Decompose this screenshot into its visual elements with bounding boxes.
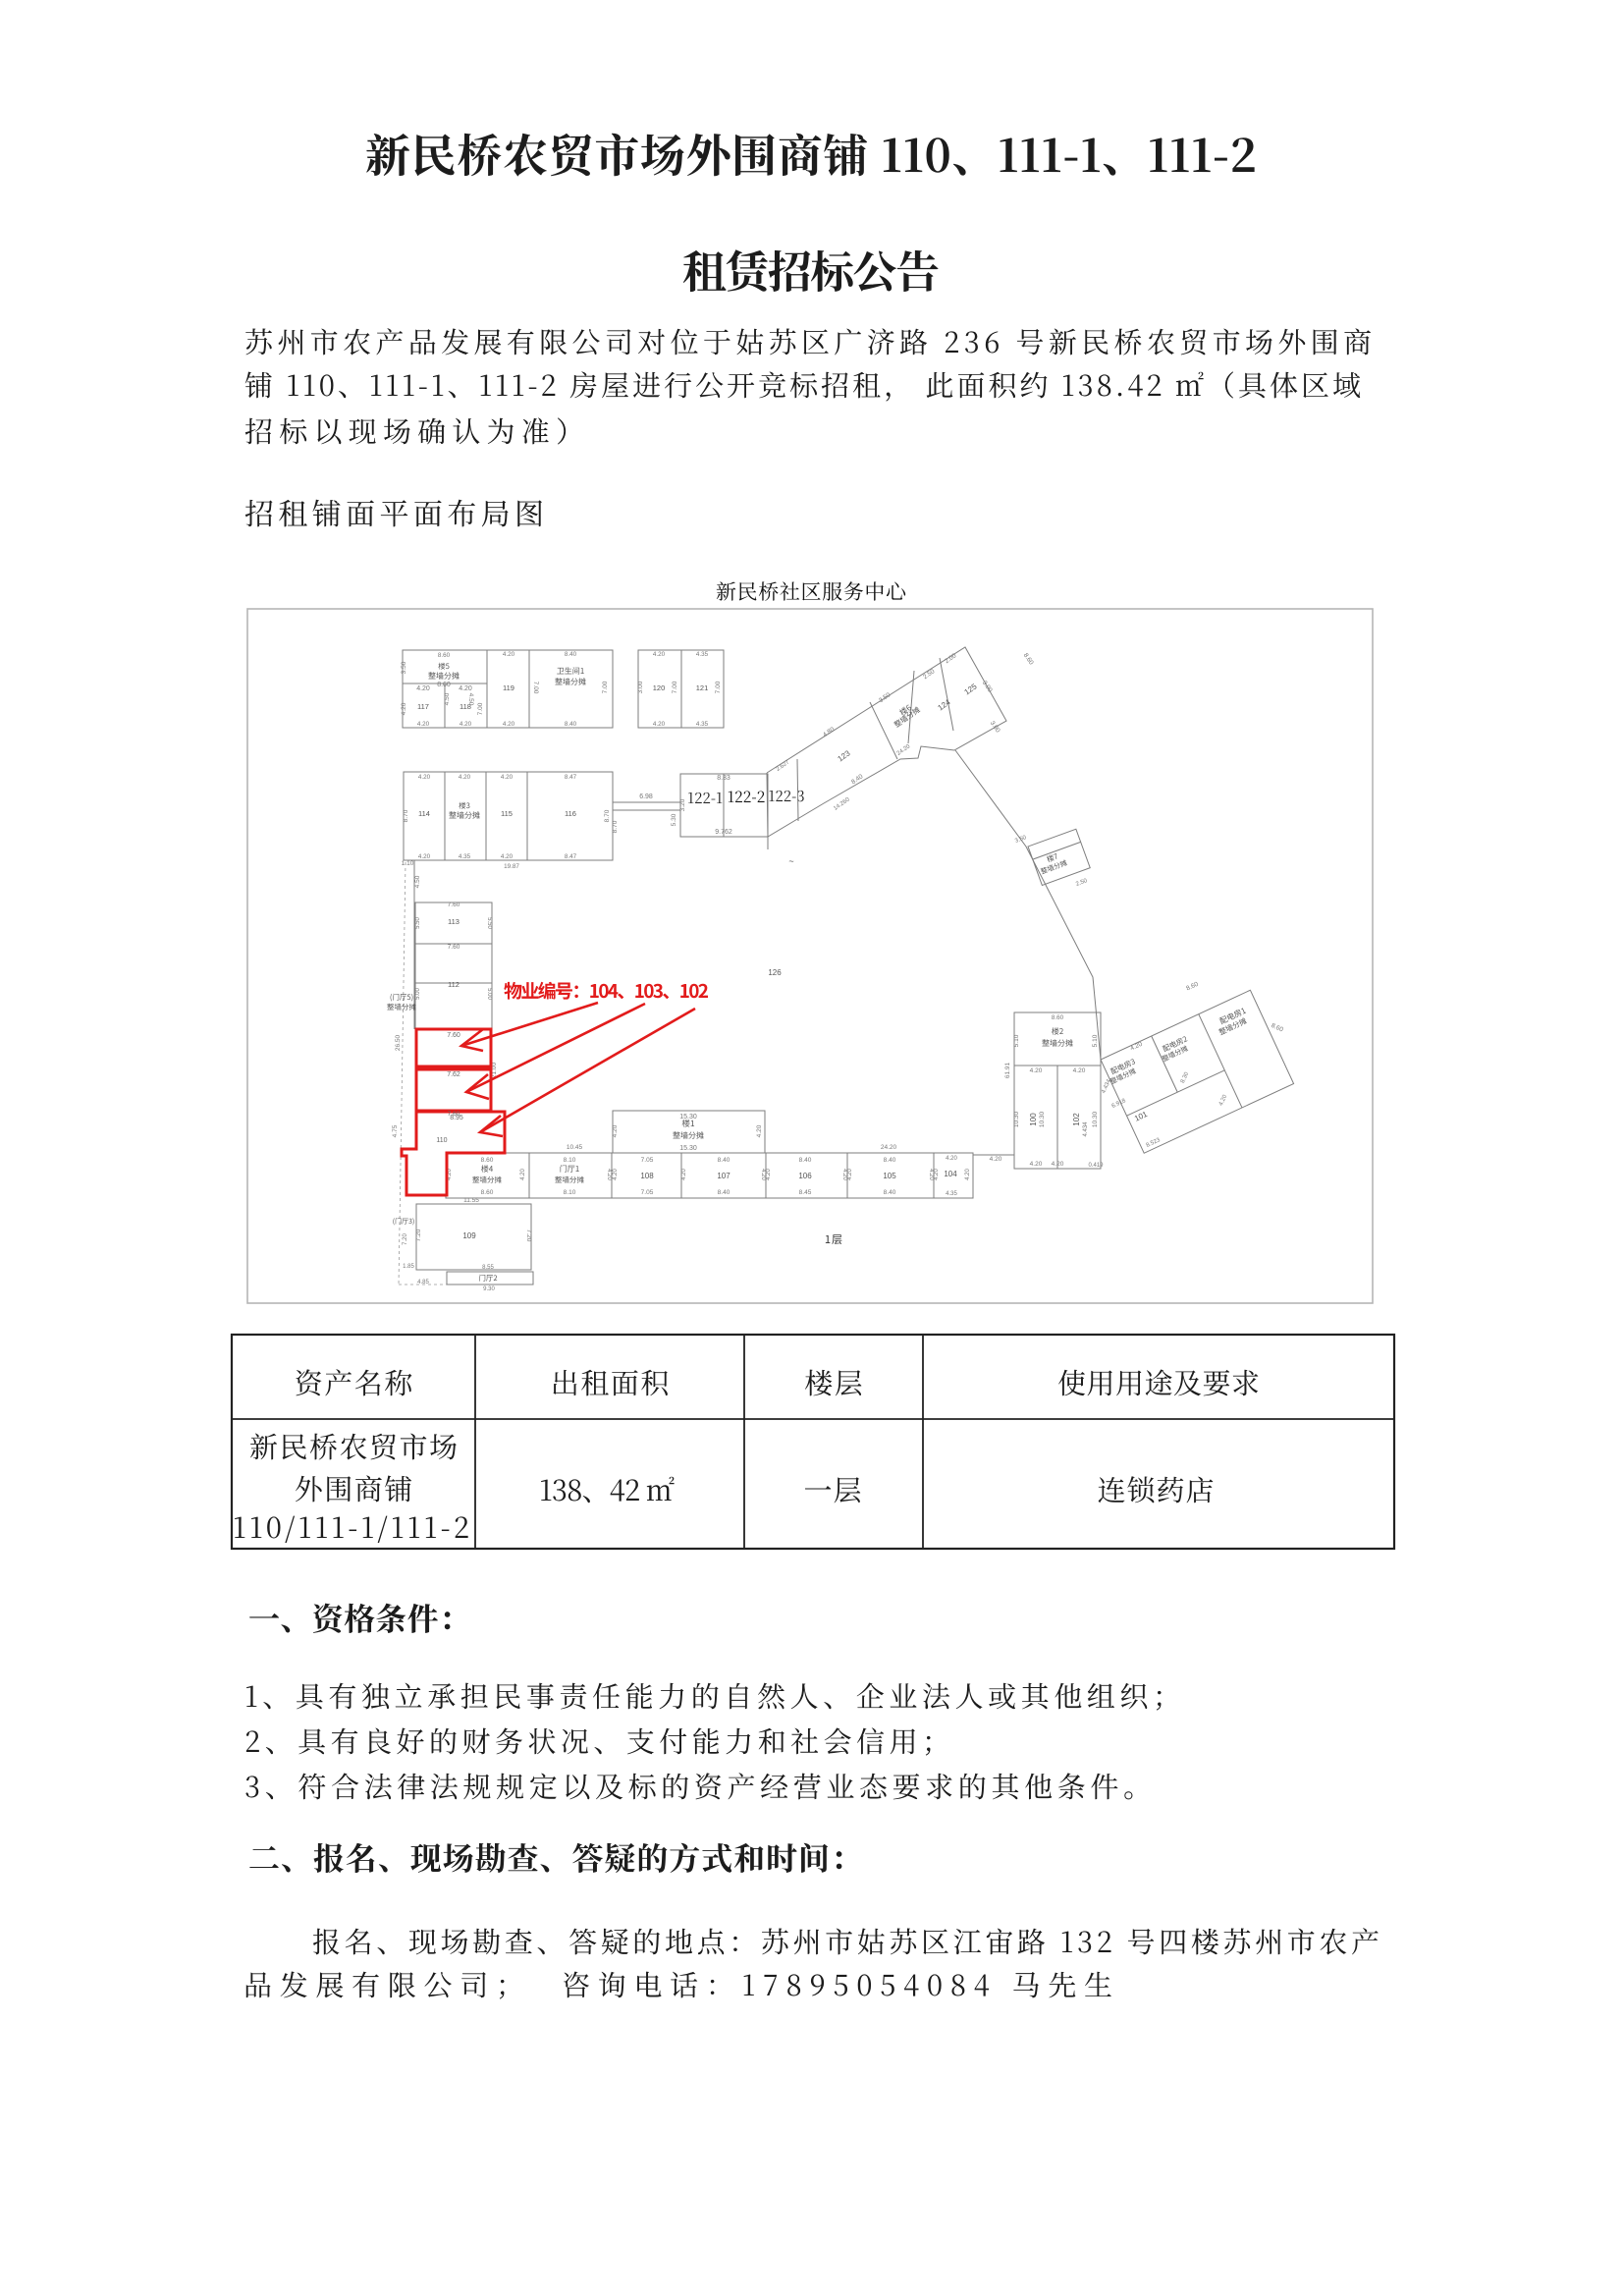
svg-text:11.55: 11.55: [463, 1197, 479, 1204]
svg-text:4.20: 4.20: [613, 1169, 619, 1180]
svg-text:4.20: 4.20: [418, 774, 431, 781]
svg-text:6.98: 6.98: [639, 793, 653, 800]
svg-text:116: 116: [565, 809, 576, 818]
svg-text:7.20: 7.20: [403, 1233, 408, 1245]
svg-text:104: 104: [944, 1170, 957, 1178]
svg-text:4.20: 4.20: [459, 685, 472, 692]
svg-text:8.60: 8.60: [437, 682, 451, 688]
svg-text:117: 117: [417, 702, 429, 711]
svg-text:8.47: 8.47: [565, 853, 577, 860]
svg-text:4.20: 4.20: [612, 1124, 619, 1137]
svg-text:4.20: 4.20: [503, 651, 515, 658]
svg-text:7.00: 7.00: [477, 702, 484, 715]
svg-text:4.35: 4.35: [459, 853, 471, 860]
svg-text:8.70: 8.70: [604, 809, 611, 822]
svg-text:4.20: 4.20: [459, 774, 471, 781]
svg-text:10.45: 10.45: [567, 1144, 583, 1151]
svg-text:8.60: 8.60: [481, 1189, 494, 1196]
svg-text:7.20: 7.20: [525, 1230, 532, 1242]
svg-text:8.40: 8.40: [565, 651, 577, 658]
svg-text:4.85: 4.85: [417, 1280, 429, 1285]
svg-text:8.10: 8.10: [564, 1157, 576, 1164]
svg-text:107: 107: [717, 1172, 730, 1180]
svg-text:7.60: 7.60: [448, 902, 460, 908]
svg-text:4.20: 4.20: [501, 774, 514, 781]
svg-text:8.60: 8.60: [1052, 1014, 1064, 1021]
svg-text:8.47: 8.47: [565, 774, 577, 781]
svg-text:7.00: 7.00: [532, 682, 539, 694]
svg-text:114: 114: [418, 809, 430, 818]
svg-text:8.70: 8.70: [612, 820, 619, 833]
svg-text:4.20: 4.20: [990, 1156, 1002, 1163]
svg-text:4.20: 4.20: [401, 702, 407, 715]
svg-text:8.70: 8.70: [403, 809, 409, 822]
svg-text:8.40: 8.40: [565, 721, 577, 728]
svg-text:7.00: 7.00: [672, 681, 678, 693]
svg-text:4.20: 4.20: [1052, 1161, 1064, 1168]
svg-text:8.40: 8.40: [884, 1189, 896, 1196]
svg-text:10.30: 10.30: [1092, 1111, 1099, 1127]
svg-text:8.40: 8.40: [799, 1157, 812, 1164]
svg-text:4.20: 4.20: [847, 1169, 853, 1180]
svg-text:15.30: 15.30: [679, 1114, 697, 1121]
svg-text:4.20: 4.20: [1030, 1161, 1043, 1168]
svg-text:3.00: 3.00: [637, 681, 644, 693]
svg-text:0.419: 0.419: [1088, 1163, 1104, 1169]
svg-text:4.20: 4.20: [681, 1169, 687, 1180]
svg-text:5.00: 5.00: [486, 988, 492, 1000]
svg-text:5.50: 5.50: [415, 917, 421, 929]
svg-text:4.20: 4.20: [503, 721, 515, 728]
svg-text:4.50: 4.50: [414, 875, 421, 888]
svg-text:5.00: 5.00: [415, 988, 421, 1000]
svg-text:8.40: 8.40: [718, 1157, 730, 1164]
svg-text:4.20: 4.20: [946, 1156, 957, 1162]
svg-text:5.30: 5.30: [671, 813, 677, 826]
svg-text:4.20: 4.20: [1030, 1067, 1043, 1074]
svg-text:4.35: 4.35: [696, 721, 709, 728]
svg-text:4.20: 4.20: [653, 651, 666, 658]
svg-text:4.20: 4.20: [416, 685, 430, 692]
svg-text:26.50: 26.50: [395, 1034, 402, 1051]
svg-text:102: 102: [1072, 1113, 1081, 1126]
svg-text:8.60: 8.60: [438, 652, 451, 659]
svg-text:4.20: 4.20: [460, 721, 472, 728]
svg-text:9.30: 9.30: [483, 1286, 495, 1292]
svg-text:119: 119: [503, 683, 514, 692]
svg-text:8.45: 8.45: [799, 1189, 812, 1196]
svg-text:7.20: 7.20: [415, 1229, 422, 1241]
svg-text:8.40: 8.40: [884, 1157, 896, 1164]
svg-text:4.20: 4.20: [520, 1169, 526, 1180]
svg-text:105: 105: [883, 1172, 896, 1180]
svg-text:1.85: 1.85: [403, 1264, 414, 1270]
svg-text:15.30: 15.30: [679, 1145, 697, 1152]
svg-text:7.00: 7.00: [602, 681, 609, 693]
svg-text:100: 100: [1029, 1113, 1038, 1126]
svg-text:5.50: 5.50: [486, 917, 492, 929]
svg-text:115: 115: [501, 809, 513, 818]
svg-text:4.20: 4.20: [965, 1169, 971, 1180]
svg-text:4.20: 4.20: [606, 1169, 612, 1180]
svg-text:4.20: 4.20: [417, 721, 430, 728]
svg-text:4.20: 4.20: [756, 1124, 763, 1137]
svg-text:112: 112: [448, 980, 460, 989]
svg-text:109: 109: [462, 1231, 476, 1240]
svg-text:10.30: 10.30: [1013, 1111, 1020, 1127]
svg-text:9.762: 9.762: [715, 829, 732, 836]
svg-text:~: ~: [788, 856, 793, 866]
svg-text:4.75: 4.75: [392, 1124, 399, 1137]
svg-text:4.20: 4.20: [418, 853, 431, 860]
svg-text:7.60: 7.60: [448, 944, 460, 951]
svg-text:8.33: 8.33: [717, 775, 730, 782]
svg-text:5.10: 5.10: [1013, 1034, 1020, 1047]
svg-text:61.91: 61.91: [1004, 1062, 1011, 1078]
svg-text:4.20: 4.20: [653, 721, 666, 728]
svg-text:10.30: 10.30: [1039, 1111, 1046, 1127]
svg-text:126: 126: [768, 968, 782, 977]
svg-text:7.60: 7.60: [448, 1111, 460, 1118]
svg-text:4.434: 4.434: [1083, 1121, 1089, 1137]
svg-text:3.20: 3.20: [679, 798, 686, 811]
svg-text:7.60: 7.60: [447, 1032, 460, 1039]
svg-text:4.50: 4.50: [467, 693, 474, 706]
svg-text:4.20: 4.20: [1073, 1067, 1086, 1074]
svg-text:5.10: 5.10: [1092, 1034, 1099, 1047]
svg-text:113: 113: [448, 917, 460, 926]
svg-text:4.35: 4.35: [946, 1191, 957, 1197]
svg-text:4.50: 4.50: [444, 692, 451, 705]
svg-text:121: 121: [696, 683, 709, 692]
svg-text:7.62: 7.62: [447, 1071, 460, 1078]
svg-text:7.05: 7.05: [641, 1189, 654, 1196]
svg-text:19.87: 19.87: [504, 863, 519, 870]
svg-text:8.55: 8.55: [482, 1265, 494, 1271]
svg-text:110: 110: [436, 1137, 447, 1144]
svg-text:8.10: 8.10: [564, 1189, 576, 1196]
svg-text:8.60: 8.60: [481, 1157, 494, 1164]
svg-text:106: 106: [798, 1172, 812, 1180]
svg-text:24.20: 24.20: [881, 1144, 897, 1151]
svg-text:7.05: 7.05: [641, 1157, 654, 1164]
svg-text:4.35: 4.35: [696, 651, 709, 658]
svg-text:4.20: 4.20: [766, 1169, 772, 1180]
svg-text:108: 108: [640, 1172, 654, 1180]
svg-text:4.20: 4.20: [501, 853, 514, 860]
svg-text:3.50: 3.50: [401, 661, 407, 674]
svg-text:1.10: 1.10: [402, 860, 414, 867]
svg-text:8.40: 8.40: [718, 1189, 730, 1196]
svg-text:7.00: 7.00: [715, 681, 722, 693]
svg-text:120: 120: [653, 683, 666, 692]
svg-text:4.20: 4.20: [934, 1169, 940, 1180]
